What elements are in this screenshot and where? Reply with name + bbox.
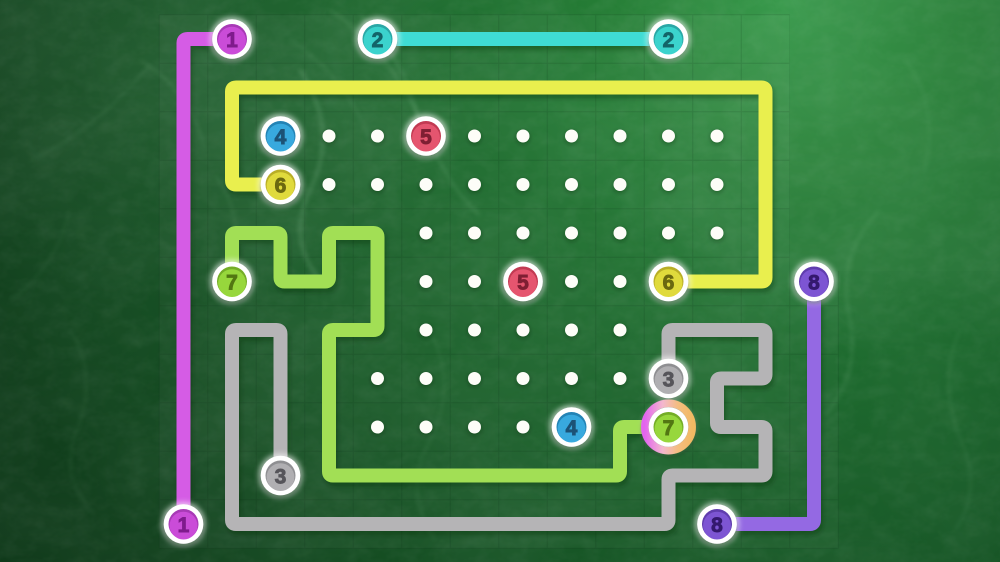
svg-text:2: 2	[663, 29, 675, 52]
svg-text:3: 3	[663, 368, 675, 391]
svg-text:2: 2	[372, 29, 384, 52]
svg-text:5: 5	[420, 126, 432, 149]
svg-text:4: 4	[566, 417, 578, 440]
svg-text:8: 8	[808, 271, 820, 294]
svg-text:8: 8	[711, 514, 723, 537]
svg-text:7: 7	[663, 417, 675, 440]
svg-text:4: 4	[275, 126, 287, 149]
svg-text:7: 7	[226, 271, 238, 294]
svg-text:3: 3	[275, 465, 287, 488]
svg-text:1: 1	[178, 514, 190, 537]
svg-text:1: 1	[226, 29, 238, 52]
svg-text:6: 6	[663, 271, 675, 294]
svg-text:5: 5	[517, 271, 529, 294]
svg-text:6: 6	[275, 174, 287, 197]
